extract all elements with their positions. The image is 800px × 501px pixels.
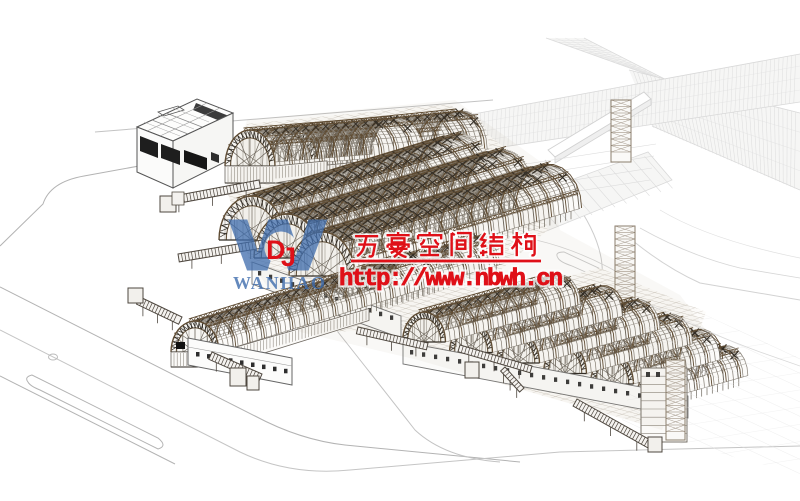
svg-text:http://www.nbwh.cn: http://www.nbwh.cn (339, 266, 563, 293)
svg-text:J: J (281, 242, 296, 272)
